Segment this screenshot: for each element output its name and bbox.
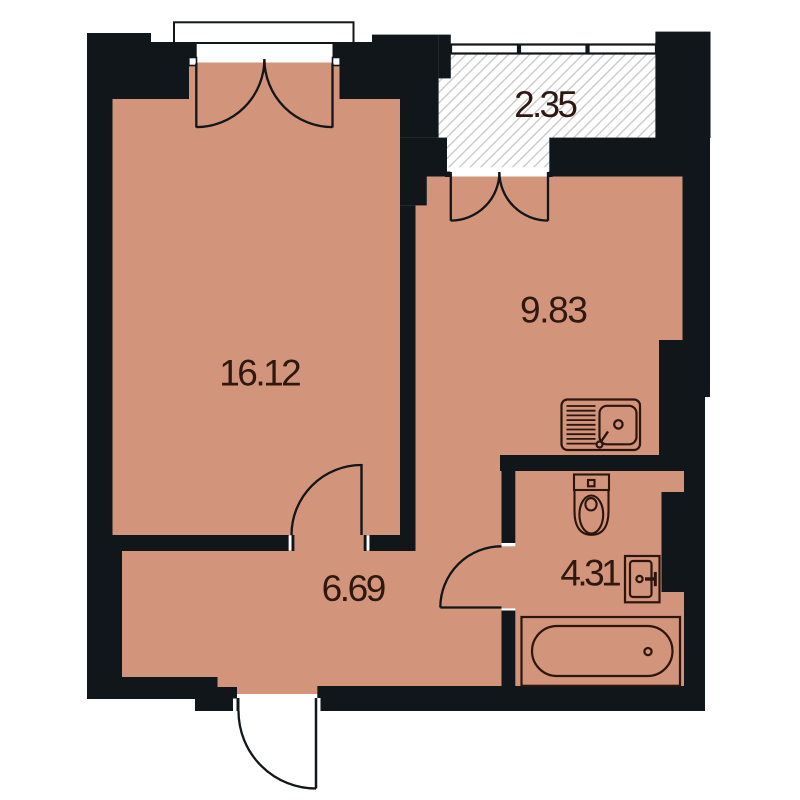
svg-text:2.35: 2.35 xyxy=(514,84,578,125)
svg-text:6.69: 6.69 xyxy=(322,568,387,609)
svg-text:9.83: 9.83 xyxy=(520,289,588,330)
svg-text:16.12: 16.12 xyxy=(219,353,302,394)
svg-text:4.31: 4.31 xyxy=(560,553,621,594)
